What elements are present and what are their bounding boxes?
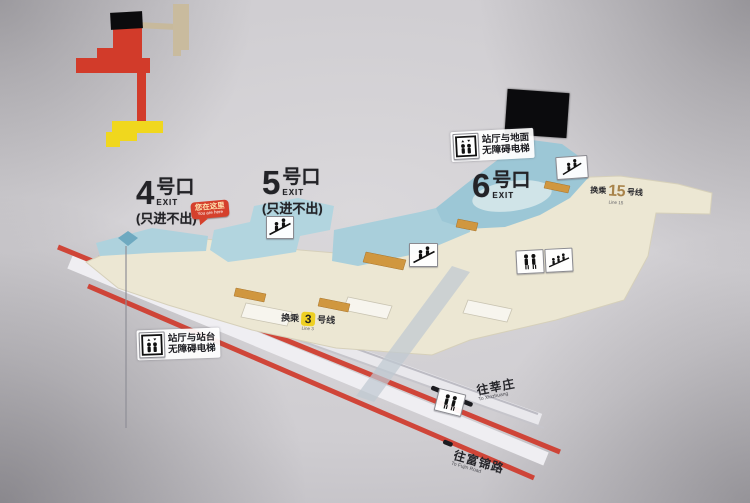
elevator-sign-hall-platform-line2: 无障碍电梯	[168, 343, 216, 356]
transfer-line3-label: 换乘 3 号线 Line 3	[281, 311, 336, 333]
exit5-number: 5	[262, 166, 280, 199]
stairs-escalator-icon-pair	[515, 248, 573, 275]
exit6-label: 6 号口 EXIT	[472, 169, 530, 202]
transfer-line3-suffix: 号线	[317, 315, 335, 325]
transfer-line15-suffix: 号线	[627, 189, 643, 198]
exit5-suffix: 号口	[282, 168, 320, 187]
you-are-here-sublabel: You are here	[197, 210, 223, 217]
station-map-photo: 4 号口 EXIT (只进不出) 5 号口 EXIT (只进不出) 6 号口 E…	[0, 0, 750, 503]
escalator-icon	[409, 243, 438, 267]
you-are-here-bubble: 您在这里 You are here	[190, 199, 229, 219]
exit5-label: 5 号口 EXIT (只进不出)	[262, 166, 323, 215]
exit6-number: 6	[472, 169, 490, 202]
redacted-label-mini	[110, 11, 143, 30]
escalator-icon	[555, 155, 589, 180]
minimap-line15-shape	[173, 4, 189, 56]
exit6-exit-word: EXIT	[492, 192, 530, 200]
line3-number-badge: 3	[301, 312, 316, 327]
elevator-icon	[452, 133, 479, 160]
elevator-sign-hall-ground-line2: 无障碍电梯	[482, 143, 530, 157]
elevator-icon	[139, 331, 166, 358]
exit4-note: (只进不出)	[136, 212, 197, 225]
transfer-line15-sublabel: Line 15	[608, 201, 623, 206]
minimap-line3-shape	[106, 121, 163, 147]
transfer-line3-prefix: 换乘	[281, 313, 299, 323]
station-diagram	[0, 0, 750, 503]
escalator-icon	[266, 216, 294, 239]
minimap-line1-stem	[137, 73, 146, 123]
minimap-line15-connector	[137, 22, 177, 30]
exit5-exit-word: EXIT	[282, 189, 320, 197]
stairs-icon	[515, 249, 544, 274]
exit5-note: (只进不出)	[262, 202, 323, 215]
station-minimap	[76, 4, 189, 147]
elevator-sign-hall-platform: 站厅与站台 无障碍电梯	[137, 328, 221, 361]
exit4-number: 4	[136, 176, 154, 209]
exit4-label: 4 号口 EXIT (只进不出)	[136, 176, 197, 225]
line15-number: 15	[608, 184, 626, 201]
family-escalator-icon	[544, 248, 573, 273]
exit4-suffix: 号口	[156, 178, 194, 197]
transfer-line15-label: 换乘 15 号线 Line 15	[589, 183, 643, 207]
transfer-line15-prefix: 换乘	[590, 187, 606, 196]
transfer-line3-sublabel: Line 3	[301, 327, 313, 332]
elevator-sign-hall-ground: 站厅与地面 无障碍电梯	[450, 128, 534, 162]
exit4-exit-word: EXIT	[156, 199, 194, 207]
exit6-suffix: 号口	[492, 171, 530, 190]
